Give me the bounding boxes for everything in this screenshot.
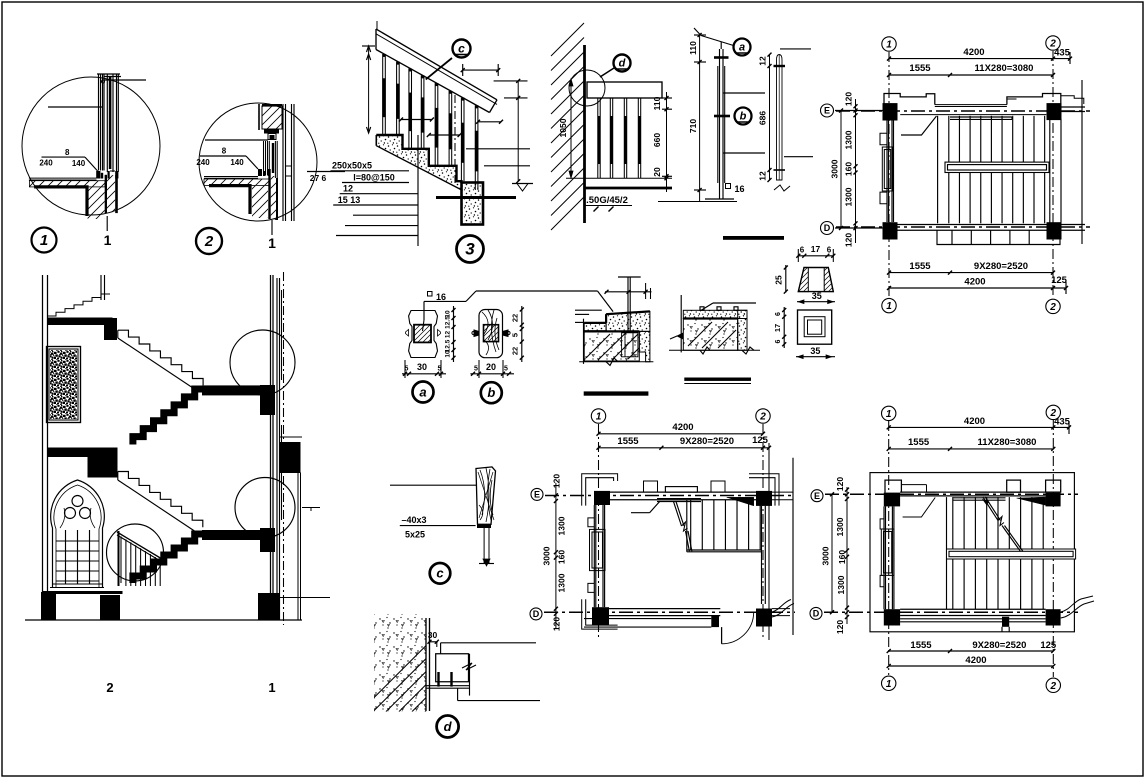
- svg-text:2: 2: [204, 233, 214, 250]
- svg-text:22: 22: [511, 314, 520, 322]
- svg-text:12.5: 12.5: [445, 339, 452, 352]
- svg-text:6: 6: [775, 339, 782, 343]
- svg-text:6: 6: [800, 246, 805, 255]
- svg-text:710: 710: [688, 119, 698, 133]
- svg-text:4200: 4200: [963, 47, 984, 58]
- svg-text:1: 1: [596, 412, 602, 423]
- svg-text:1555: 1555: [909, 261, 931, 272]
- svg-text:11X280=3080: 11X280=3080: [975, 63, 1034, 74]
- svg-text:22: 22: [511, 347, 520, 355]
- svg-text:140: 140: [72, 159, 86, 168]
- svg-text:E: E: [814, 491, 820, 501]
- svg-text:5x25: 5x25: [405, 530, 425, 540]
- svg-text:250x50x5: 250x50x5: [332, 161, 372, 171]
- svg-text:l=80@150: l=80@150: [353, 173, 395, 183]
- svg-text:660: 660: [652, 133, 662, 147]
- svg-text:120: 120: [844, 233, 854, 247]
- svg-text:9X280=2520: 9X280=2520: [974, 261, 1028, 272]
- svg-text:2: 2: [106, 680, 113, 695]
- svg-text:b: b: [740, 111, 747, 123]
- svg-text:4200: 4200: [965, 655, 986, 666]
- svg-text:435: 435: [1054, 48, 1071, 59]
- svg-text:12.5: 12.5: [445, 316, 452, 329]
- svg-text:.50G/45/2: .50G/45/2: [586, 195, 628, 206]
- svg-text:1: 1: [886, 40, 892, 51]
- svg-text:D: D: [533, 609, 540, 619]
- svg-text:125: 125: [752, 435, 769, 446]
- svg-text:5: 5: [511, 333, 520, 337]
- svg-text:110: 110: [652, 96, 662, 110]
- svg-text:120: 120: [835, 620, 845, 634]
- svg-text:1: 1: [104, 232, 112, 248]
- svg-text:1555: 1555: [908, 437, 930, 448]
- svg-text:125: 125: [1040, 640, 1057, 651]
- svg-text:120: 120: [835, 477, 845, 491]
- svg-text:1555: 1555: [910, 640, 932, 651]
- svg-text:d: d: [619, 58, 626, 70]
- svg-text:1555: 1555: [909, 63, 931, 74]
- svg-text:6: 6: [827, 246, 832, 255]
- svg-text:1: 1: [268, 680, 275, 695]
- svg-text:35: 35: [810, 346, 820, 356]
- svg-text:120: 120: [844, 92, 854, 106]
- svg-text:1300: 1300: [557, 573, 567, 592]
- svg-text:1: 1: [886, 409, 892, 420]
- svg-text:3: 3: [465, 240, 475, 259]
- svg-text:1300: 1300: [844, 187, 854, 206]
- svg-text:8: 8: [222, 147, 227, 156]
- svg-text:1: 1: [268, 235, 276, 251]
- svg-text:20: 20: [652, 167, 662, 177]
- svg-text:160: 160: [837, 550, 847, 564]
- svg-text:4200: 4200: [964, 416, 985, 427]
- svg-text:E: E: [824, 106, 830, 116]
- svg-text:12: 12: [758, 171, 768, 181]
- svg-text:17: 17: [811, 244, 821, 254]
- svg-text:1300: 1300: [836, 575, 846, 594]
- svg-text:5: 5: [474, 366, 478, 373]
- svg-text:12: 12: [445, 331, 452, 339]
- svg-text:b: b: [487, 385, 495, 400]
- svg-text:160: 160: [557, 550, 567, 564]
- svg-text:1: 1: [886, 301, 892, 312]
- svg-text:140: 140: [230, 158, 244, 167]
- svg-text:16: 16: [436, 292, 446, 302]
- svg-text:1555: 1555: [617, 436, 639, 447]
- svg-text:3000: 3000: [830, 159, 840, 178]
- svg-text:c: c: [458, 41, 465, 55]
- svg-text:3000: 3000: [542, 546, 552, 565]
- svg-text:35: 35: [812, 291, 822, 301]
- svg-text:9X280=2520: 9X280=2520: [680, 436, 734, 447]
- svg-text:110: 110: [688, 41, 698, 55]
- svg-text:8: 8: [65, 148, 70, 157]
- svg-text:4200: 4200: [964, 277, 985, 288]
- svg-text:240: 240: [196, 158, 210, 167]
- svg-text:435: 435: [1054, 417, 1071, 428]
- svg-text:16: 16: [734, 184, 744, 194]
- svg-text:E: E: [534, 490, 540, 500]
- svg-text:12: 12: [758, 56, 768, 66]
- svg-text:2: 2: [1049, 302, 1056, 313]
- svg-text:1: 1: [886, 679, 892, 690]
- svg-text:1300: 1300: [557, 516, 567, 535]
- svg-text:12: 12: [343, 184, 353, 194]
- svg-text:1050: 1050: [558, 118, 568, 137]
- svg-text:2: 2: [1050, 681, 1057, 692]
- svg-text:686: 686: [758, 111, 768, 125]
- svg-text:2: 2: [759, 412, 766, 423]
- svg-text:240: 240: [39, 159, 53, 168]
- svg-text:30: 30: [417, 362, 427, 372]
- svg-text:20: 20: [486, 362, 496, 372]
- svg-text:D: D: [824, 223, 831, 233]
- svg-text:120: 120: [552, 474, 562, 488]
- svg-text:D: D: [813, 609, 820, 619]
- svg-text:15 13: 15 13: [338, 195, 361, 205]
- svg-text:10: 10: [445, 350, 452, 358]
- svg-text:120: 120: [552, 617, 562, 631]
- svg-text:1: 1: [40, 232, 48, 249]
- svg-text:27 6: 27 6: [310, 173, 327, 183]
- svg-text:6: 6: [775, 312, 782, 316]
- svg-text:5: 5: [504, 366, 508, 373]
- svg-text:a: a: [739, 42, 745, 54]
- svg-text:c: c: [436, 566, 444, 581]
- svg-text:9X280=2520: 9X280=2520: [972, 640, 1026, 651]
- svg-text:1300: 1300: [844, 130, 854, 149]
- svg-text:a: a: [419, 384, 426, 399]
- svg-text:1300: 1300: [835, 517, 845, 536]
- svg-text:11X280=3080: 11X280=3080: [978, 437, 1037, 448]
- svg-text:25: 25: [774, 275, 784, 285]
- svg-text:3000: 3000: [821, 546, 831, 565]
- svg-text:125: 125: [1051, 275, 1068, 286]
- svg-text:30: 30: [428, 630, 438, 640]
- svg-text:4200: 4200: [672, 422, 693, 433]
- svg-text:160: 160: [844, 162, 854, 176]
- svg-text:17: 17: [773, 324, 782, 332]
- svg-text:–40x3: –40x3: [401, 515, 426, 525]
- svg-text:d: d: [444, 719, 453, 734]
